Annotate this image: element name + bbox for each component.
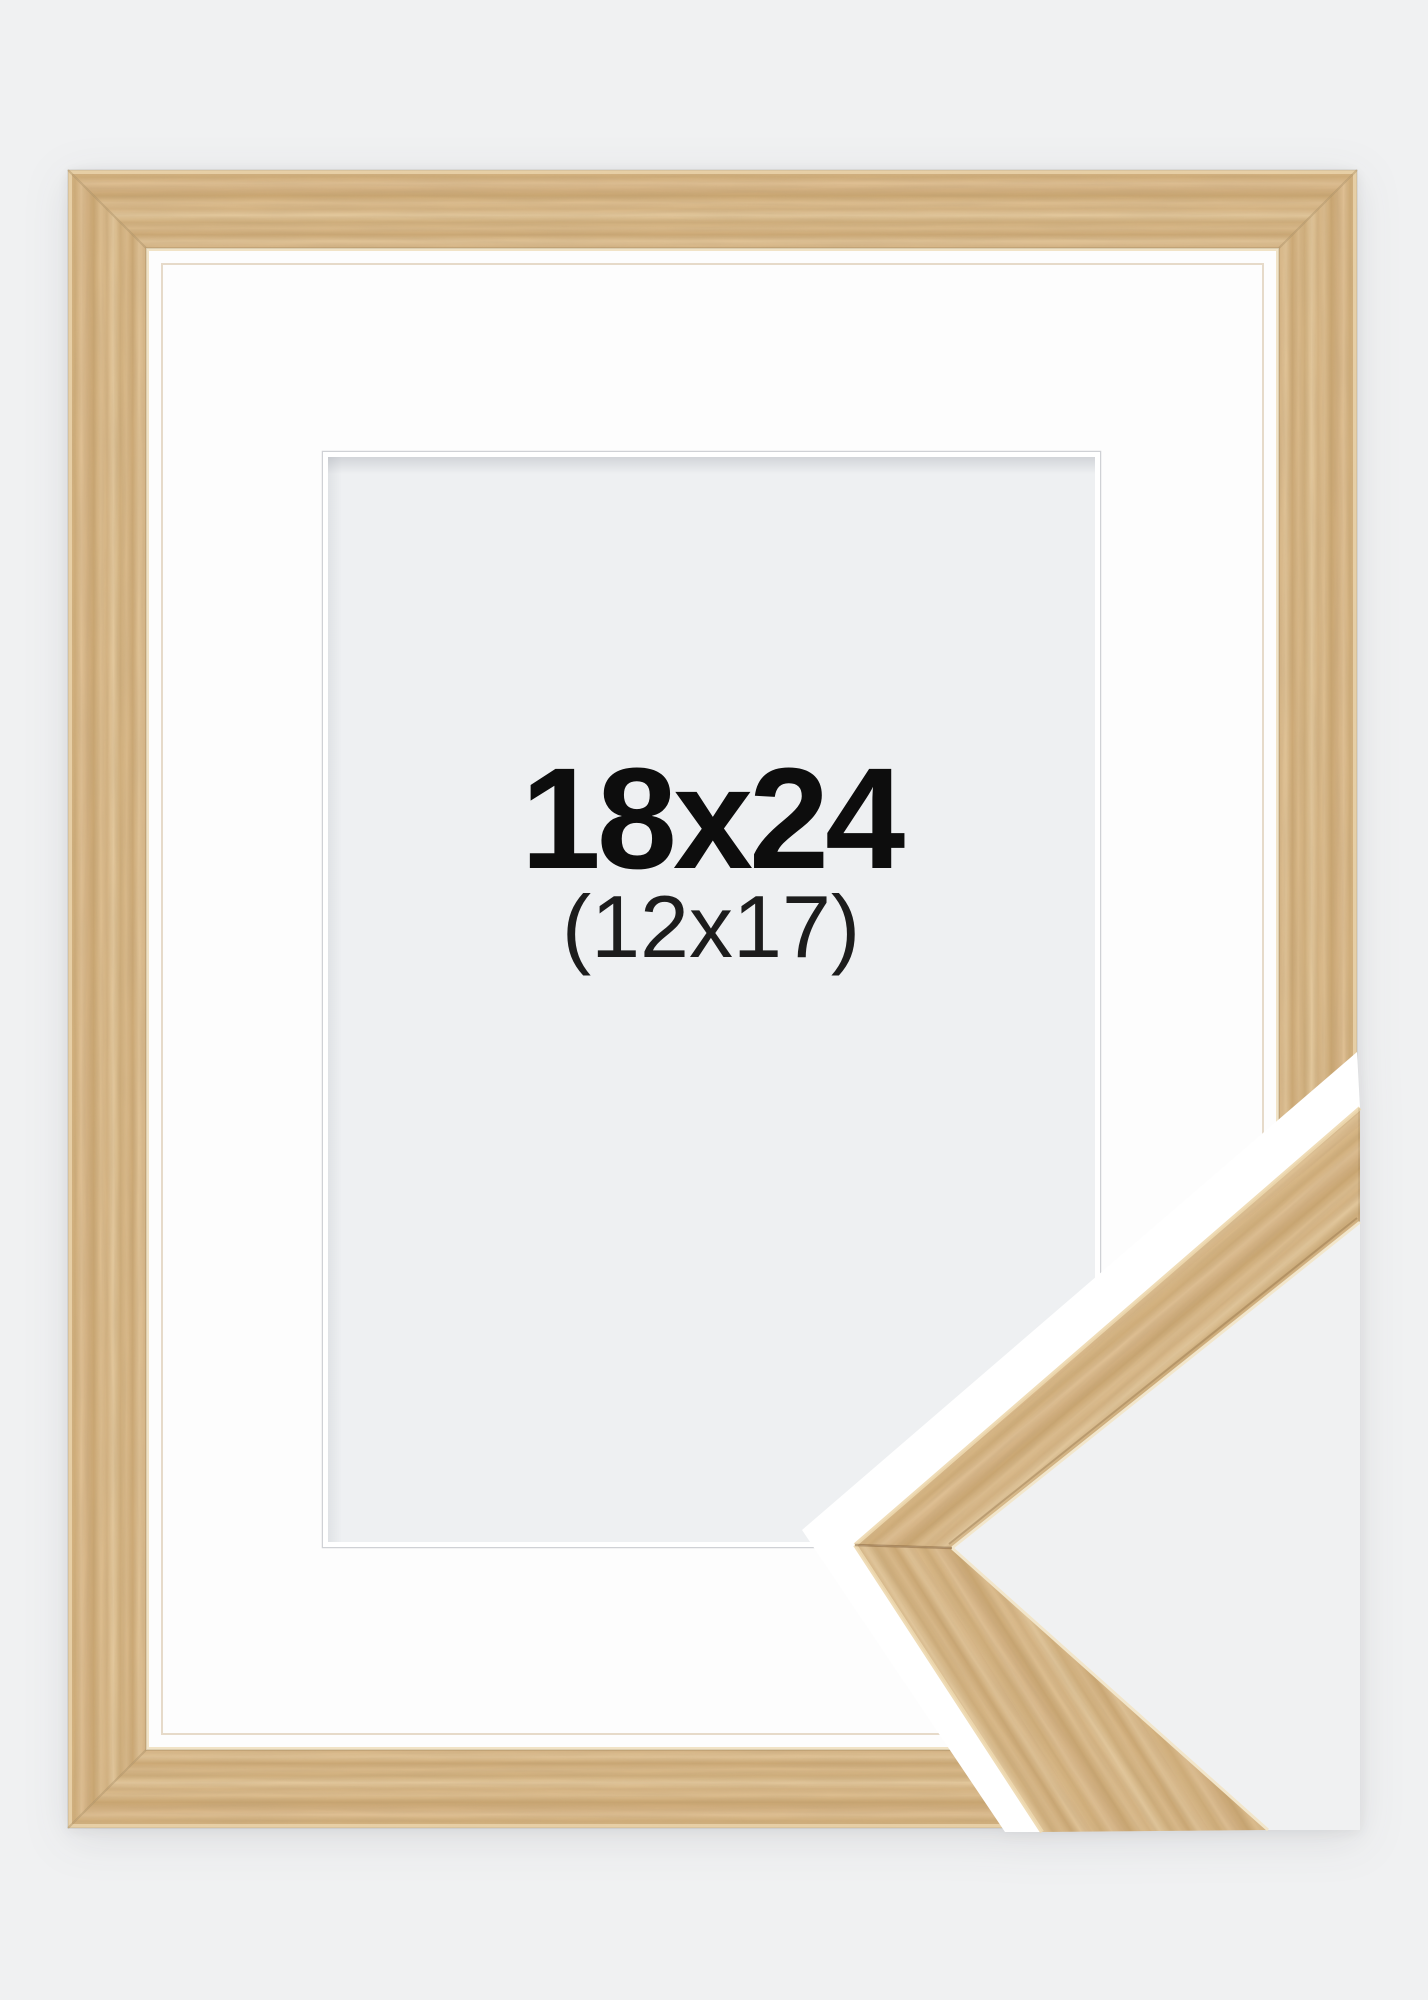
size-label: 18x24 [521,738,905,899]
product-image: 18x24 (12x17) [0,0,1428,2000]
frame-product-photo: 18x24 (12x17) [0,0,1428,2000]
inner-size-label: (12x17) [562,877,860,976]
